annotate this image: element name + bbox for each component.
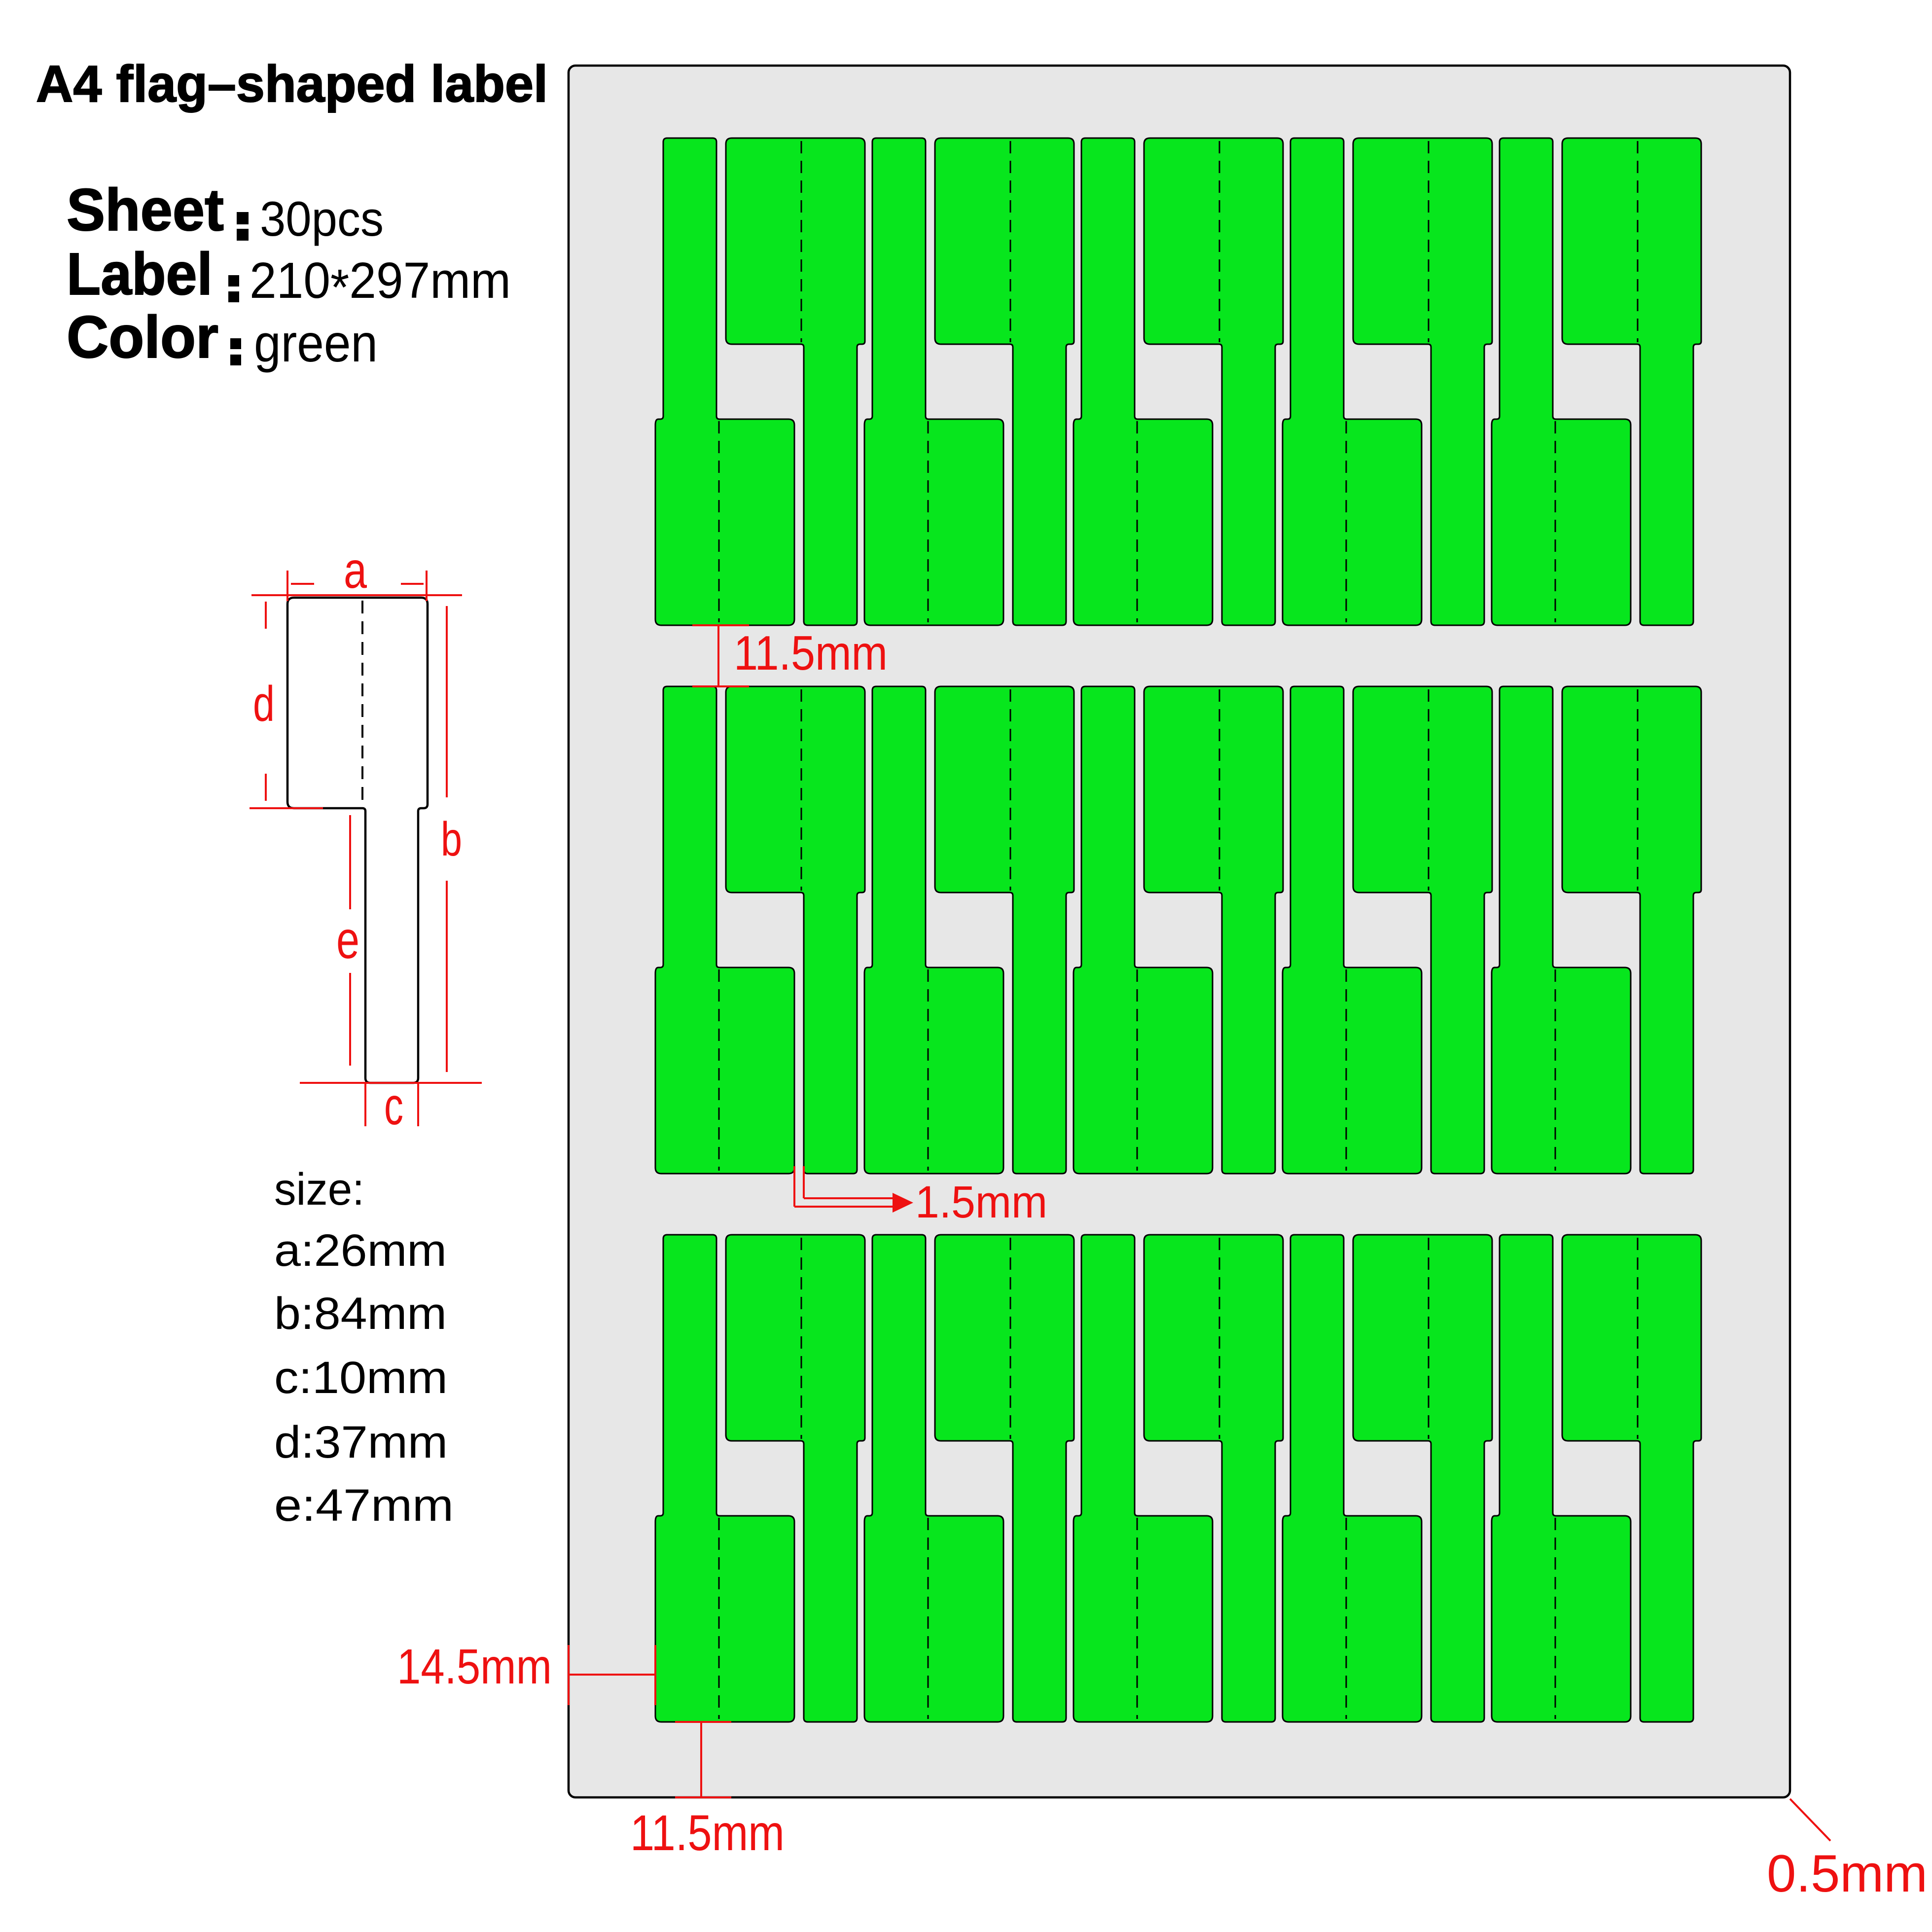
svg-text:A4 flag–shaped label: A4 flag–shaped label (36, 55, 548, 113)
svg-text:size:: size: (274, 1164, 364, 1215)
svg-text:d: d (253, 677, 275, 732)
svg-text:d:37mm: d:37mm (274, 1417, 448, 1467)
svg-text:b:84mm: b:84mm (274, 1288, 447, 1339)
svg-text:1.5mm: 1.5mm (915, 1177, 1047, 1227)
svg-text:210*297mm: 210*297mm (250, 252, 511, 316)
svg-text:14.5mm: 14.5mm (397, 1639, 552, 1694)
svg-text:30pcs: 30pcs (260, 191, 384, 246)
svg-text:e: e (336, 910, 359, 969)
svg-text:e:47mm: e:47mm (274, 1480, 454, 1531)
svg-text:green: green (254, 313, 378, 373)
svg-text:b: b (441, 812, 462, 866)
svg-text:c:10mm: c:10mm (274, 1353, 448, 1403)
svg-text:11.5mm: 11.5mm (630, 1805, 785, 1861)
svg-text:0.5mm: 0.5mm (1767, 1844, 1928, 1903)
svg-text:Sheet: Sheet (67, 176, 224, 243)
svg-text:11.5mm: 11.5mm (734, 626, 888, 680)
svg-text:Color: Color (67, 303, 218, 370)
svg-text:Label: Label (67, 240, 213, 307)
svg-text:c: c (384, 1076, 403, 1136)
svg-text:a:26mm: a:26mm (274, 1225, 447, 1276)
svg-text:a: a (344, 542, 367, 599)
